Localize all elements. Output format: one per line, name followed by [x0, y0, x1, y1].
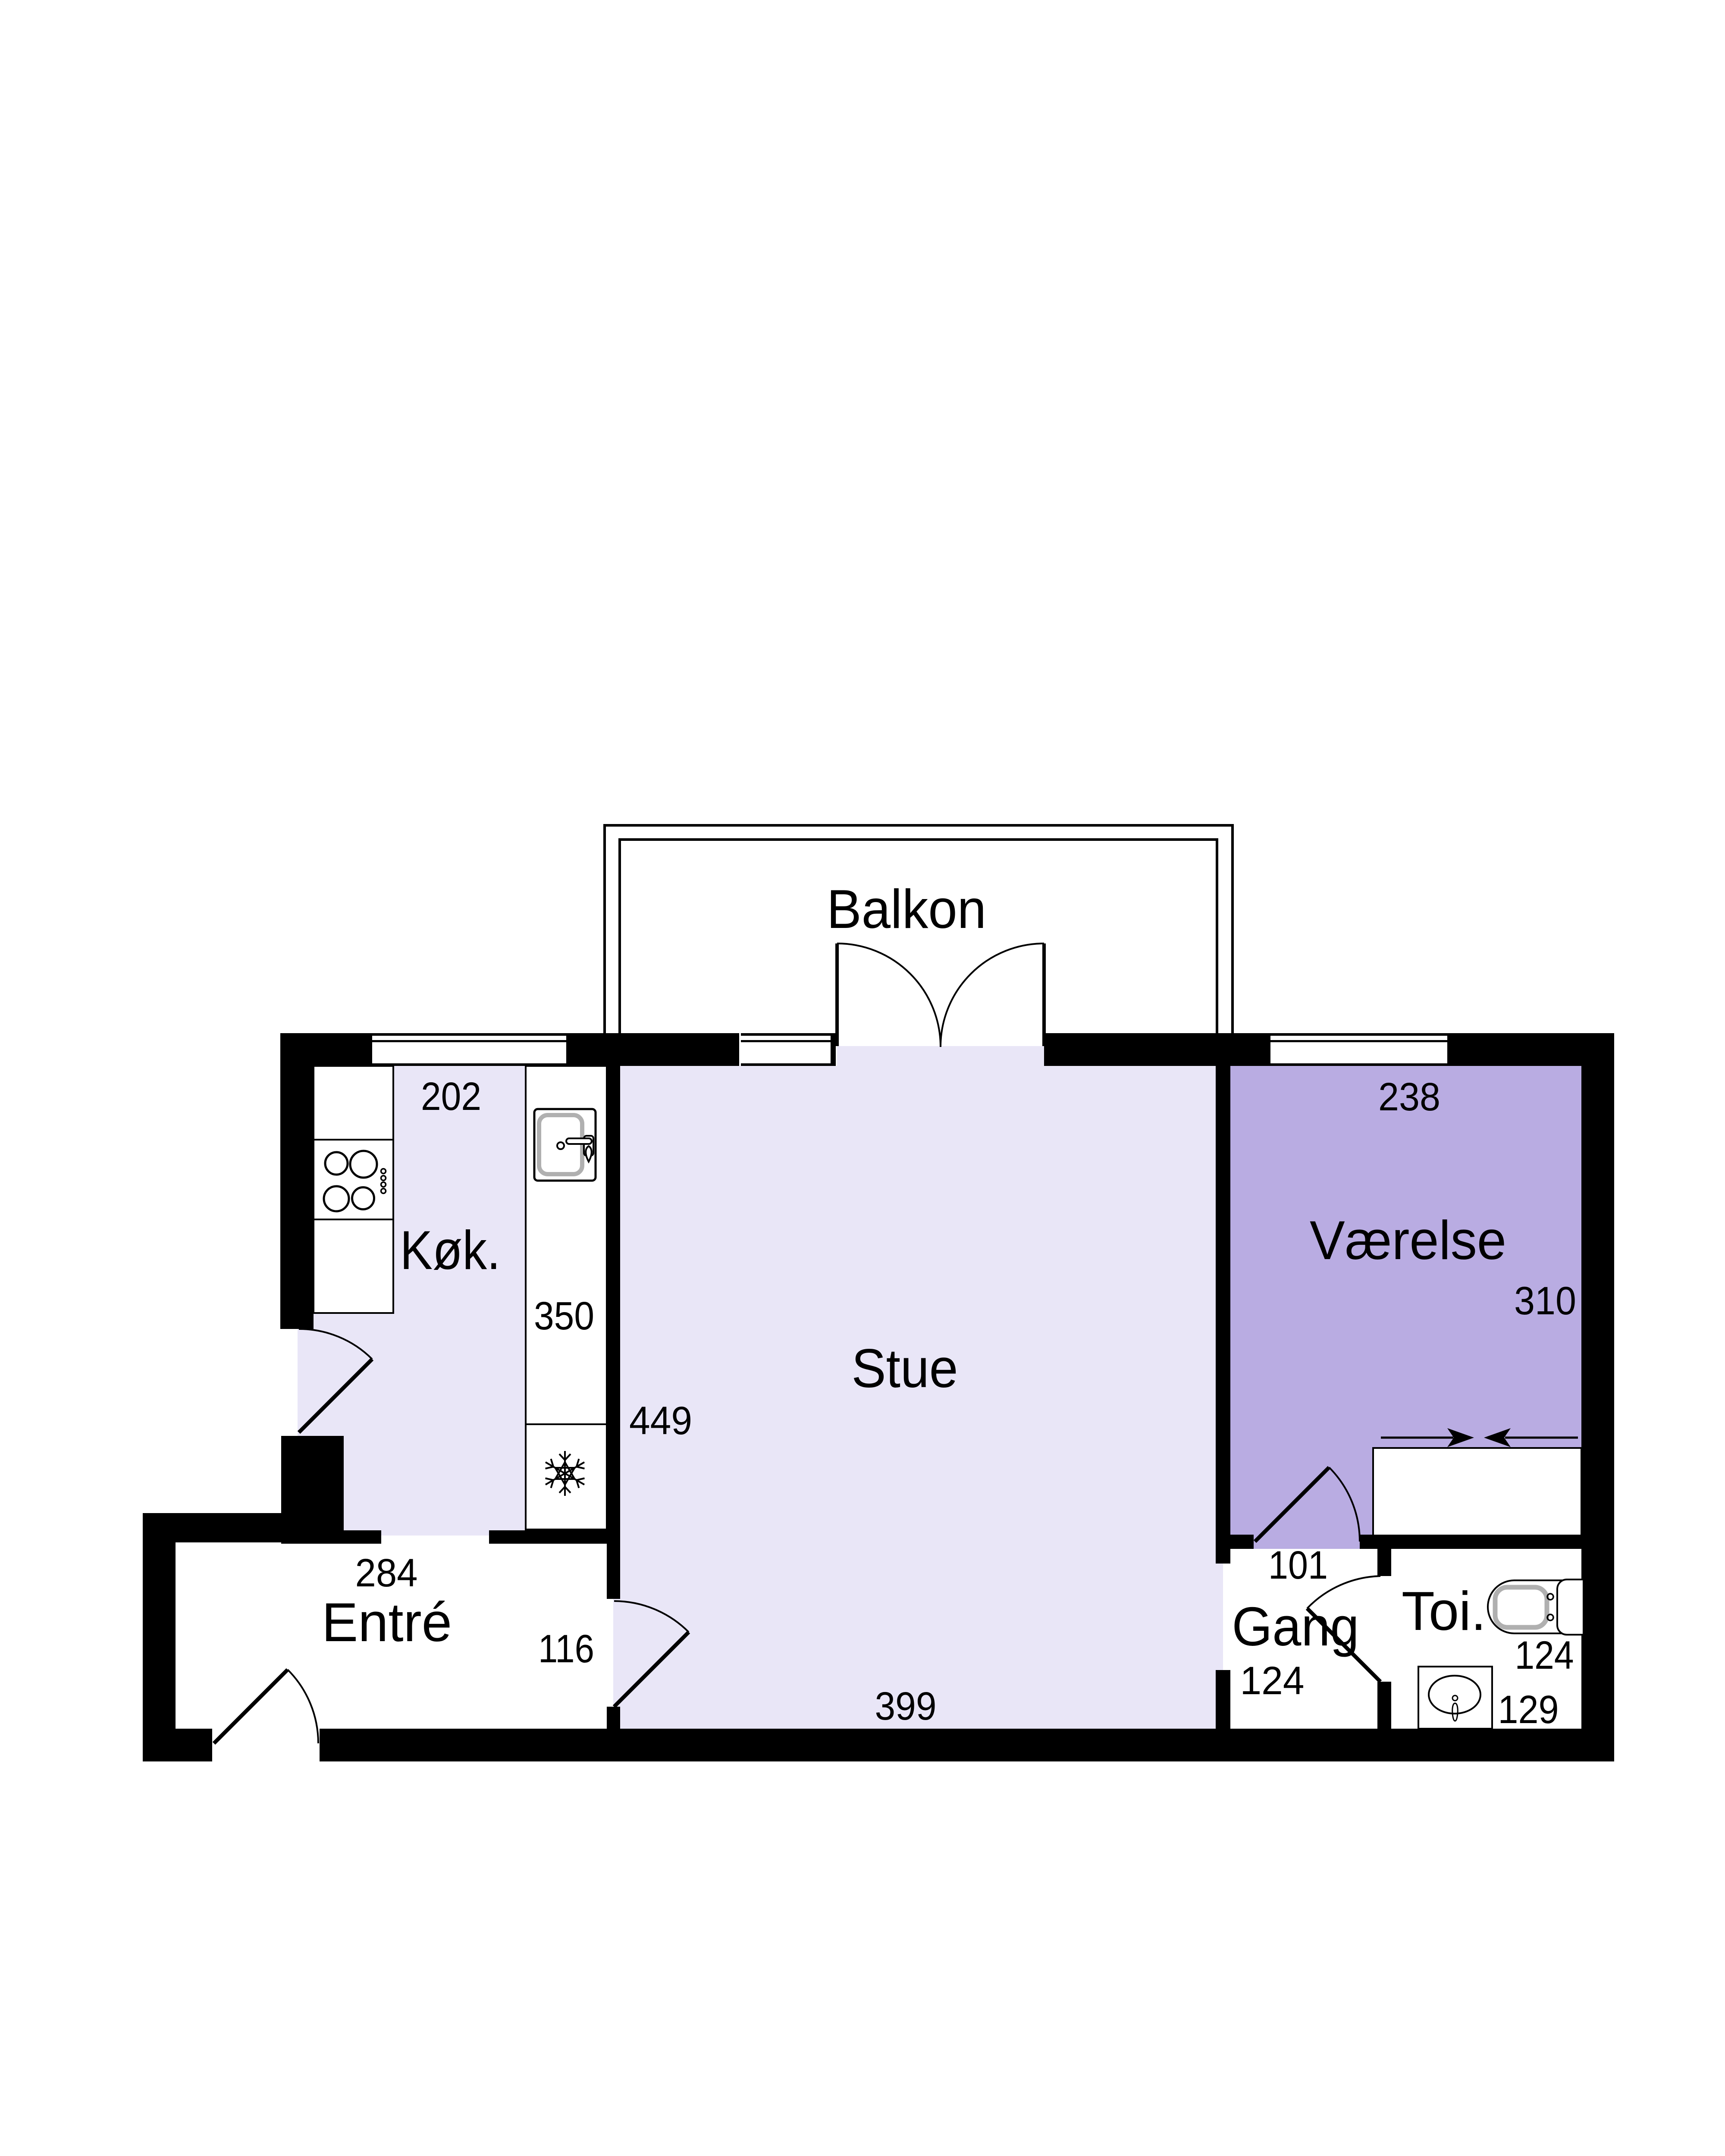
- svg-text:124: 124: [1240, 1659, 1305, 1703]
- svg-text:399: 399: [875, 1684, 937, 1728]
- svg-text:Stue: Stue: [852, 1338, 958, 1399]
- svg-text:202: 202: [421, 1075, 481, 1119]
- svg-text:Toi.: Toi.: [1402, 1580, 1486, 1642]
- svg-text:Balkon: Balkon: [827, 878, 986, 940]
- svg-text:350: 350: [534, 1294, 594, 1338]
- svg-text:Gang: Gang: [1232, 1596, 1359, 1657]
- svg-text:101: 101: [1268, 1543, 1328, 1587]
- svg-text:Køk.: Køk.: [400, 1219, 501, 1281]
- svg-text:238: 238: [1378, 1075, 1440, 1119]
- svg-text:124: 124: [1515, 1633, 1574, 1677]
- svg-text:116: 116: [538, 1627, 594, 1671]
- svg-text:310: 310: [1514, 1279, 1576, 1323]
- svg-text:Entré: Entré: [322, 1592, 452, 1653]
- svg-text:284: 284: [355, 1551, 418, 1595]
- svg-text:449: 449: [629, 1399, 692, 1443]
- svg-text:129: 129: [1498, 1688, 1559, 1732]
- svg-text:Værelse: Værelse: [1310, 1210, 1506, 1271]
